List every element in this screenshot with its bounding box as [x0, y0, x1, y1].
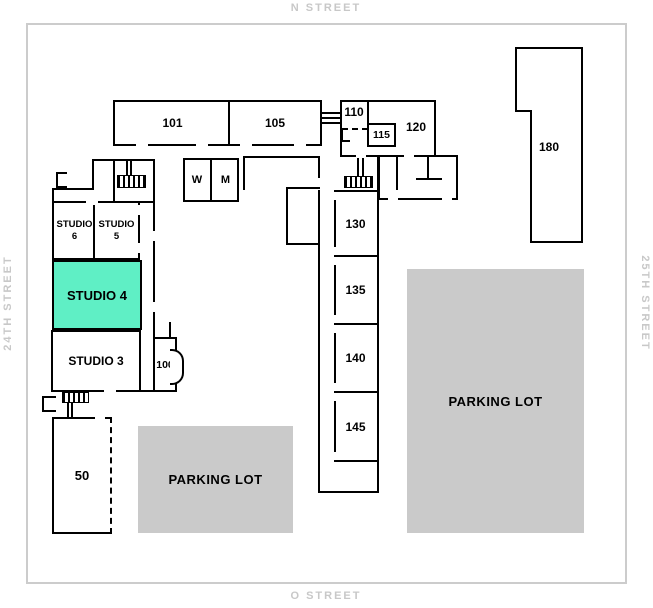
door-gap — [356, 153, 366, 158]
wall-segment — [427, 157, 429, 180]
stairs-rail — [357, 157, 364, 177]
door-gap — [136, 205, 142, 215]
door-gap — [136, 142, 148, 148]
dashed-wall — [342, 128, 368, 130]
door-gap — [136, 243, 142, 253]
wall-segment — [92, 159, 115, 161]
room-145[interactable]: 145 — [334, 391, 379, 462]
wall-segment — [367, 100, 369, 125]
room-105[interactable]: 105 — [228, 100, 322, 146]
wall-segment — [334, 265, 336, 315]
wall-segment — [334, 333, 336, 383]
street-label-south: O STREET — [226, 590, 426, 604]
floor-plan-map: N STREET O STREET 24TH STREET 25TH STREE… — [0, 0, 653, 608]
wall-segment — [318, 190, 320, 473]
wall-segment — [92, 161, 94, 190]
wall-segment — [153, 241, 155, 302]
door-gap — [294, 142, 306, 148]
street-label-east: 25TH STREET — [637, 233, 651, 373]
wall-segment — [318, 156, 320, 178]
building-180-lower[interactable] — [530, 110, 583, 243]
bridge-connector-line — [320, 122, 342, 124]
room-130[interactable]: 130 — [334, 190, 379, 257]
door-gap — [388, 196, 398, 202]
door-gap — [86, 200, 98, 205]
door-gap — [404, 153, 414, 158]
wall-segment — [153, 312, 155, 337]
door-gap — [104, 388, 116, 394]
stairs-symbol — [62, 392, 89, 403]
room-120-label: 120 — [396, 118, 436, 136]
wall-bracket — [42, 396, 56, 412]
restroom-w-label: W — [184, 170, 210, 190]
door-gap — [442, 196, 452, 202]
room-110-label: 110 — [341, 104, 367, 120]
corridor-south-end — [318, 471, 379, 493]
wall-segment — [141, 390, 155, 392]
building-180-upper[interactable] — [515, 47, 583, 112]
wall-segment — [416, 178, 442, 180]
bridge-connector-line — [320, 117, 342, 119]
stairs-symbol — [344, 176, 373, 188]
street-label-north: N STREET — [226, 2, 426, 16]
stairs-symbol — [117, 175, 146, 188]
room-115[interactable]: 115 — [367, 123, 396, 147]
stairs-rail — [67, 403, 73, 418]
restroom-m-label: M — [212, 170, 239, 190]
door-gap — [196, 142, 208, 148]
wall-segment — [52, 188, 94, 190]
wall-segment — [515, 110, 532, 112]
wall-segment — [243, 156, 320, 158]
room-50[interactable]: 50 — [52, 417, 112, 534]
parking-lot-east: PARKING LOT — [407, 269, 584, 533]
wall-segment — [334, 401, 336, 452]
parking-lot-west: PARKING LOT — [138, 426, 293, 533]
room-100-bay — [170, 349, 184, 385]
wall-segment — [377, 460, 379, 473]
wall-segment — [169, 322, 171, 337]
bridge-connector-line — [320, 112, 342, 114]
door-gap — [95, 415, 105, 421]
street-label-west: 24TH STREET — [2, 233, 16, 373]
wall-segment — [341, 140, 350, 142]
wall-bracket — [56, 172, 67, 188]
door-gap — [240, 142, 252, 148]
wall-segment — [377, 157, 379, 192]
wall-segment — [243, 158, 245, 190]
stairs-rail — [126, 159, 132, 176]
wall-segment — [153, 201, 155, 231]
wall-segment — [334, 200, 336, 247]
wall-segment — [396, 157, 398, 190]
room-studio-3[interactable]: STUDIO 3 — [51, 330, 141, 392]
room-studio-5[interactable]: STUDIO 5 — [93, 201, 140, 260]
corridor-alcove — [286, 187, 320, 245]
room-studio-4[interactable]: STUDIO 4 — [52, 260, 142, 330]
room-studio-6[interactable]: STUDIO 6 — [52, 201, 95, 260]
room-140[interactable]: 140 — [334, 323, 379, 393]
room-101[interactable]: 101 — [113, 100, 230, 146]
wall-segment — [52, 188, 54, 203]
room-135[interactable]: 135 — [334, 255, 379, 325]
room-180-label: 180 — [531, 139, 567, 155]
